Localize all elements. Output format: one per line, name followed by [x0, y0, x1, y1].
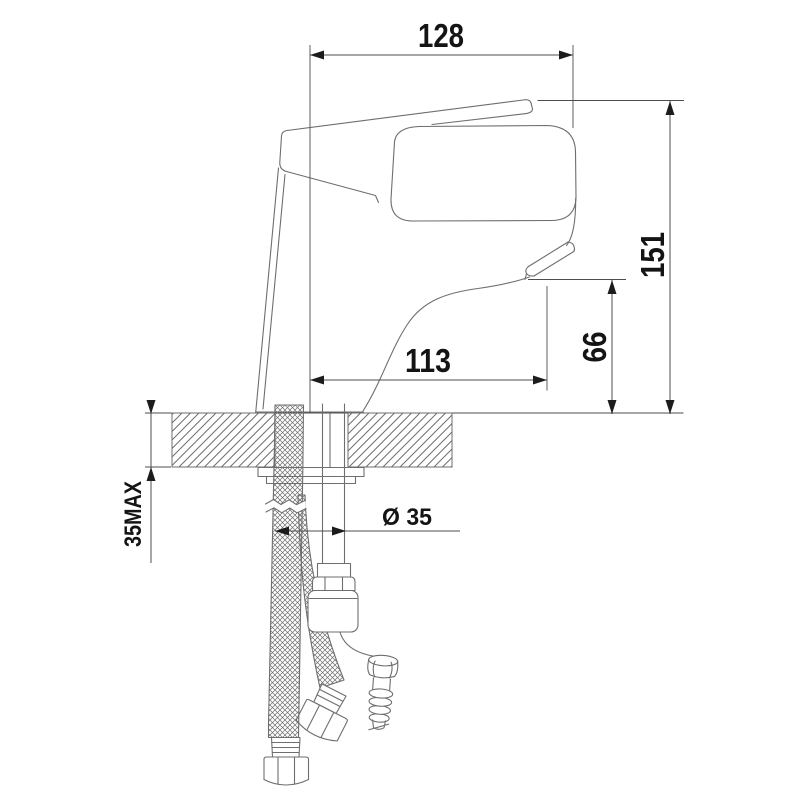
arrow-left — [310, 376, 324, 385]
dimension-spout-reach-label: 113 — [405, 342, 451, 379]
arrow-right — [559, 51, 573, 60]
countertop-slab-left — [172, 413, 275, 467]
arrow-right — [533, 376, 547, 385]
fitting-cap-top — [368, 654, 398, 666]
dimension-counter-thickness: 35MAX — [120, 400, 171, 563]
arrow-down — [147, 400, 156, 414]
dimension-total-height-label: 151 — [634, 232, 671, 278]
aerator-right-cap — [568, 242, 574, 252]
dimension-spout-height-label: 66 — [576, 332, 613, 363]
arrow-up — [666, 101, 675, 115]
retaining-cord — [340, 632, 381, 658]
countertop — [145, 413, 684, 484]
countertop-slab-right — [348, 413, 452, 467]
dimension-counter-thickness-label: 35MAX — [120, 481, 147, 547]
cartridge-housing — [391, 126, 576, 222]
arrow-up — [608, 280, 617, 294]
dimension-spout-reach: 113 — [310, 286, 547, 391]
dimension-top-width-label: 128 — [418, 17, 464, 54]
arrow-left — [310, 51, 324, 60]
hanging-screw-fitting — [363, 654, 398, 731]
dimension-spout-height: 66 — [528, 280, 626, 415]
arrow-down — [666, 400, 675, 414]
body-front-edge-outer — [256, 168, 279, 412]
arrow-right — [332, 527, 346, 536]
braided-hose-rear-end — [294, 681, 357, 746]
body-front-edge-inner — [263, 175, 285, 410]
braided-hose-front — [269, 405, 304, 738]
arrow-up — [147, 467, 156, 481]
mounting-cylinder — [308, 591, 358, 633]
hose-nut-front — [264, 757, 309, 785]
aerator-upper-edge — [529, 242, 569, 267]
dimension-hole-diameter-label: Ø 35 — [382, 504, 432, 531]
stud-collar — [318, 564, 351, 578]
arrow-down — [608, 400, 617, 414]
faucet-technical-drawing: 128 151 66 113 35MAX Ø 35 — [0, 0, 800, 800]
aerator — [525, 242, 574, 280]
aerator-lower-edge — [534, 252, 574, 277]
lever-handle-front — [280, 131, 379, 203]
fixing-hex-nut — [313, 577, 356, 591]
aerator-left-cap — [526, 267, 534, 277]
